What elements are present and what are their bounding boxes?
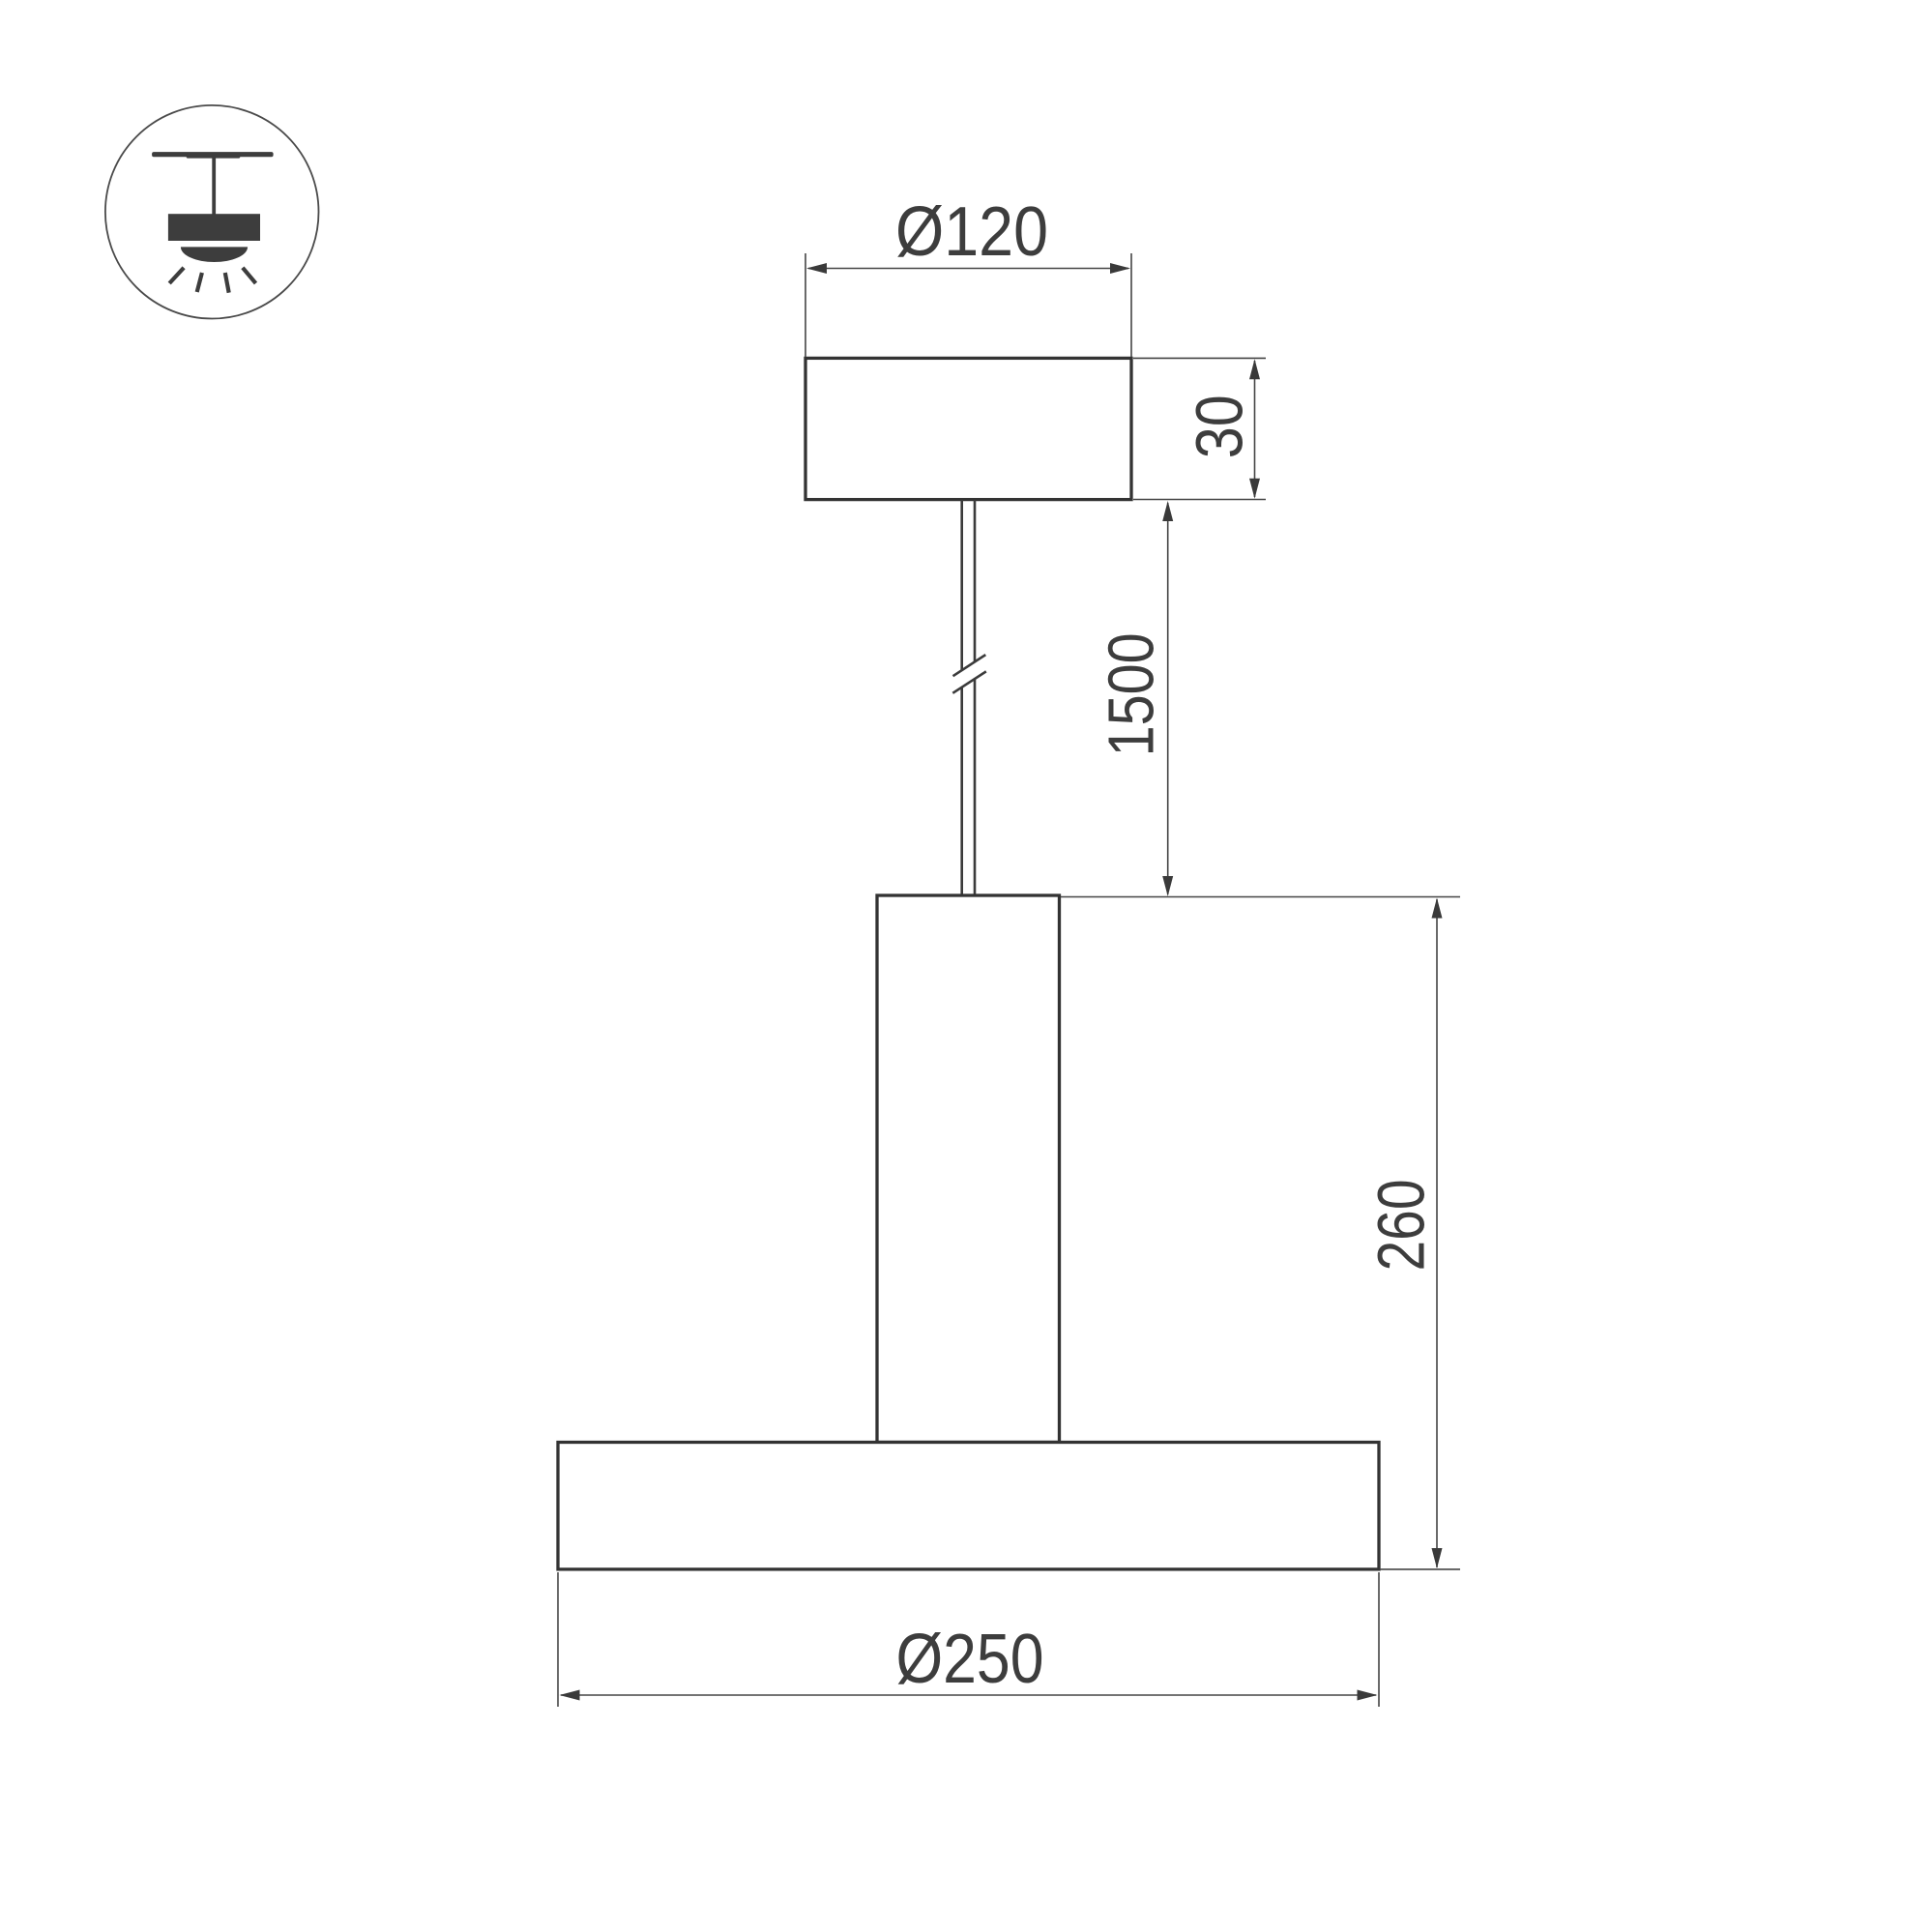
svg-text:Ø250: Ø250 bbox=[896, 1621, 1044, 1698]
svg-text:1500: 1500 bbox=[1096, 632, 1168, 756]
svg-text:Ø120: Ø120 bbox=[895, 193, 1048, 271]
svg-text:260: 260 bbox=[1364, 1180, 1439, 1272]
svg-text:30: 30 bbox=[1183, 395, 1257, 458]
